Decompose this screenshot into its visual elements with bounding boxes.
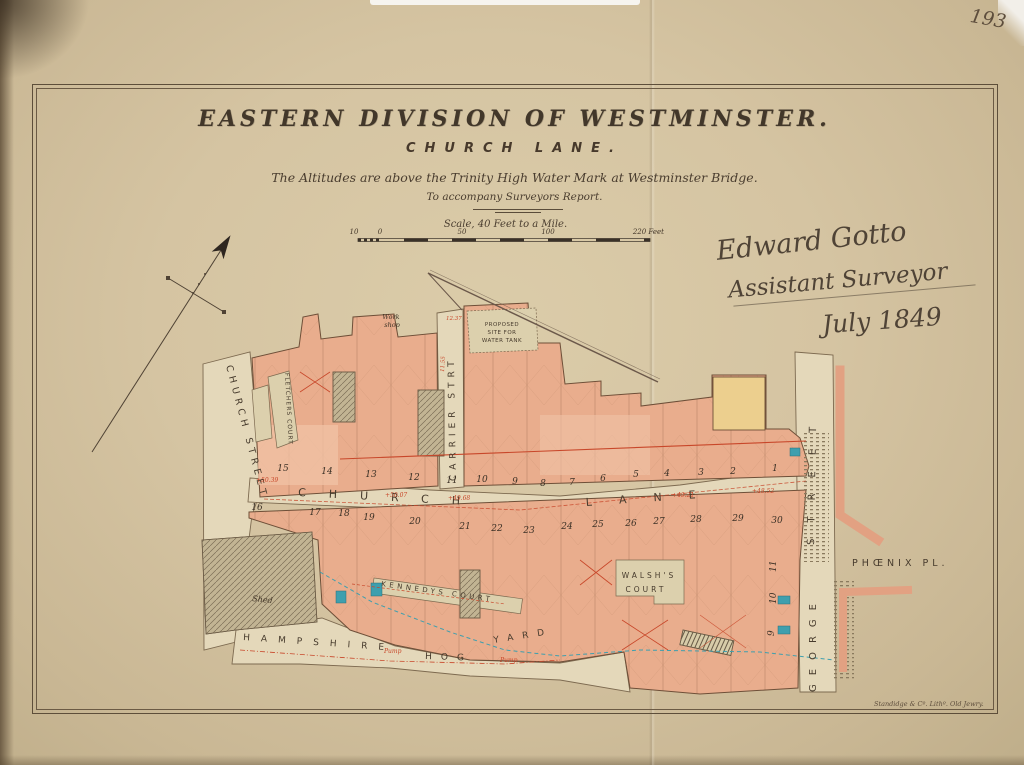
altitude-value: +48.52 [752, 488, 774, 495]
house-number: 24 [560, 522, 573, 532]
house-number: 28 [689, 515, 702, 525]
house-number: 2 [729, 467, 736, 477]
house-number: 14 [321, 467, 333, 477]
house-number: 26 [624, 519, 637, 529]
scale-tick: 100 [541, 228, 555, 236]
house-number: 8 [540, 479, 546, 489]
house-number: 4 [663, 469, 670, 479]
survey-mark: 12.37 [446, 316, 462, 322]
phoenix-place-label: PHŒNIX PL. [852, 558, 949, 569]
house-number: 10 [476, 475, 488, 485]
george-street-label-a: GEORGE [808, 595, 819, 692]
house-number: 15 [277, 464, 289, 474]
house-number: 11 [446, 476, 457, 486]
house-number: 13 [365, 470, 377, 480]
house-number: 9 [767, 630, 777, 636]
pump-label: Pump [499, 657, 518, 664]
building-light-patch [540, 415, 650, 475]
workshop-label-2: shop [384, 321, 400, 329]
altitude-value: +49.21 [672, 492, 694, 499]
house-number: 22 [490, 524, 503, 534]
house-number: 20 [408, 517, 421, 527]
scale-tick: 10 [350, 228, 359, 236]
house-number: 12 [408, 473, 420, 483]
house-number: 18 [338, 509, 350, 519]
house-number: 27 [652, 517, 665, 527]
yellow-block [713, 377, 765, 430]
house-number: 3 [698, 468, 704, 478]
house-number: 29 [731, 514, 744, 524]
survey-mark: 11.55 [440, 356, 447, 373]
water-tank-label-2: SITE FOR [487, 330, 516, 336]
house-number: 1 [772, 464, 778, 474]
house-number: 5 [633, 470, 639, 480]
house-number: 7 [569, 478, 575, 488]
altitude-value: +50.07 [385, 492, 407, 499]
house-number: 9 [512, 477, 518, 487]
map-drawing: 10 0 50 100 220 Feet CHURCH STREET CARRI… [0, 0, 1024, 765]
house-number: 23 [522, 526, 535, 536]
house-number: 11 [769, 561, 779, 572]
altitude-value: +50.39 [256, 477, 278, 484]
hatch-block [333, 372, 355, 422]
house-number: 6 [600, 474, 606, 484]
north-arrow-head [212, 231, 237, 259]
scale-tick: 220 Feet [632, 228, 664, 236]
george-street-label-b: STREET [806, 411, 819, 545]
water-tank-label-1: PROPOSED [485, 322, 519, 328]
pump-label: Pump [383, 648, 402, 655]
hog-label: HOG [425, 652, 473, 664]
walshs-court-label-1: WALSH'S [622, 571, 677, 580]
workshop-label-1: Work [382, 313, 399, 321]
water-tank-label-3: WATER TANK [482, 338, 522, 344]
house-number: 10 [769, 592, 779, 604]
house-number: 17 [309, 508, 321, 518]
altitude-value: +49.68 [448, 495, 470, 502]
scanned-map-sheet: 193 EASTERN DIVISION OF WESTMINSTER. CHU… [0, 0, 1024, 765]
house-number: 30 [771, 516, 783, 526]
house-number: 19 [363, 513, 375, 523]
walshs-court-label-2: COURT [626, 585, 667, 594]
shed-area-hatch [202, 532, 317, 634]
house-number: 21 [458, 522, 470, 532]
hatch-block [418, 390, 444, 456]
scale-tick: 50 [458, 228, 467, 236]
scale-tick: 0 [378, 228, 383, 236]
phoenix-wall [840, 370, 878, 540]
scale-bar: 10 0 50 100 220 Feet [350, 228, 665, 242]
house-number: 25 [591, 520, 604, 530]
house-number: 16 [251, 503, 263, 513]
